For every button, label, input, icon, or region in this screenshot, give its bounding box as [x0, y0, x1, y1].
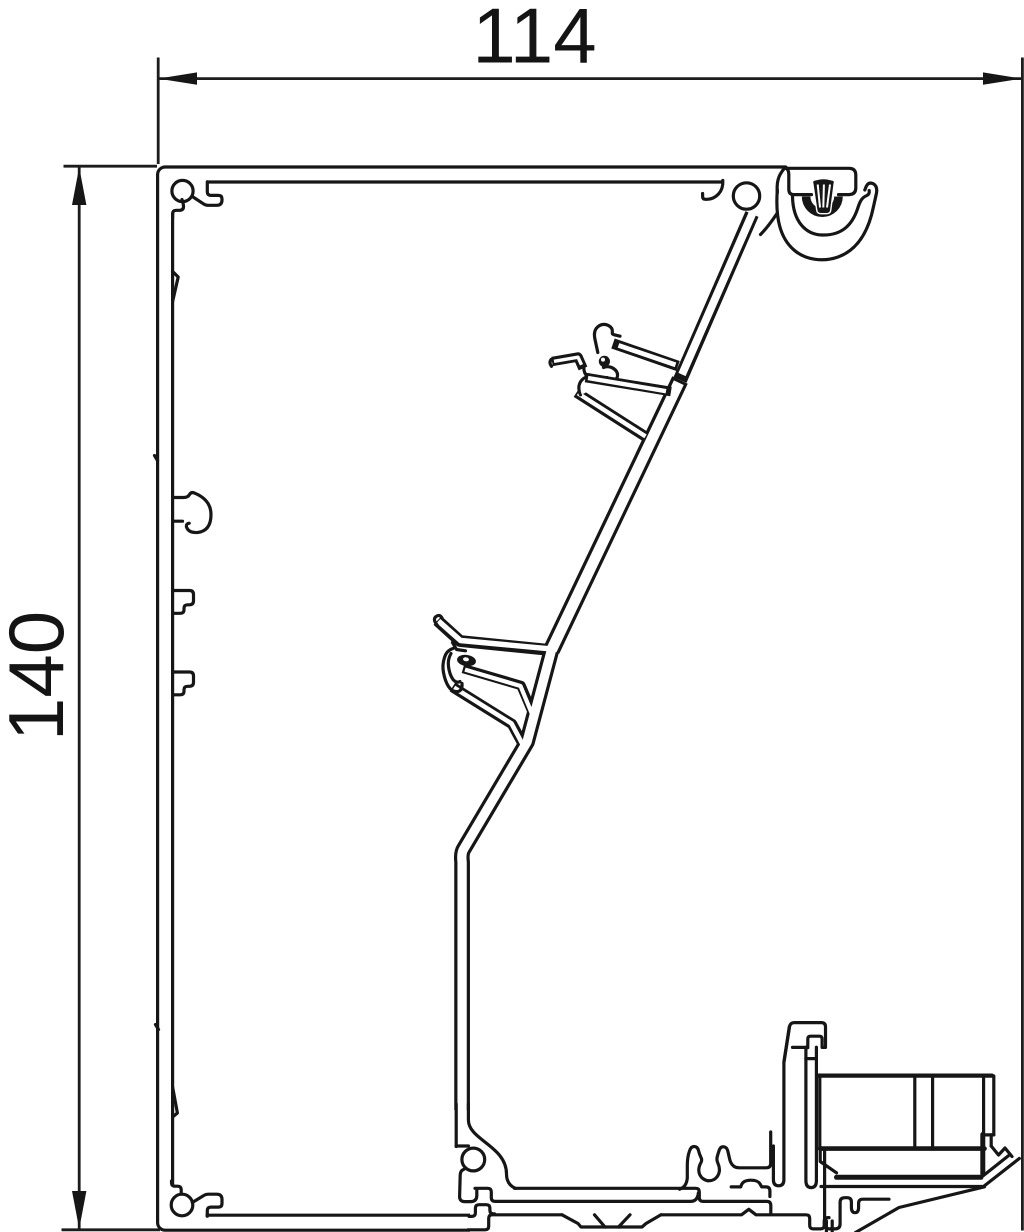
svg-text:140: 140 [0, 611, 80, 741]
svg-text:114: 114 [472, 0, 596, 80]
